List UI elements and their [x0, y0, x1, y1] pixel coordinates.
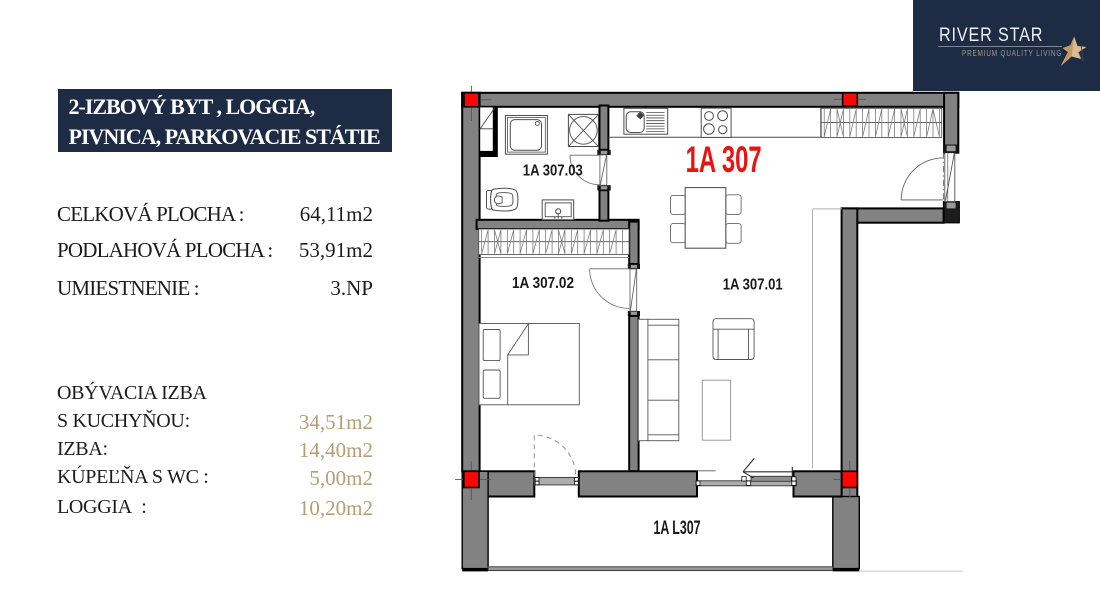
svg-text:1A L307: 1A L307: [654, 518, 701, 539]
svg-text:1A 307.02: 1A 307.02: [512, 275, 574, 292]
svg-text:1A 307.03: 1A 307.03: [523, 163, 583, 180]
svg-text:1A 307.01: 1A 307.01: [723, 277, 783, 294]
svg-text:1A 307: 1A 307: [686, 138, 762, 180]
